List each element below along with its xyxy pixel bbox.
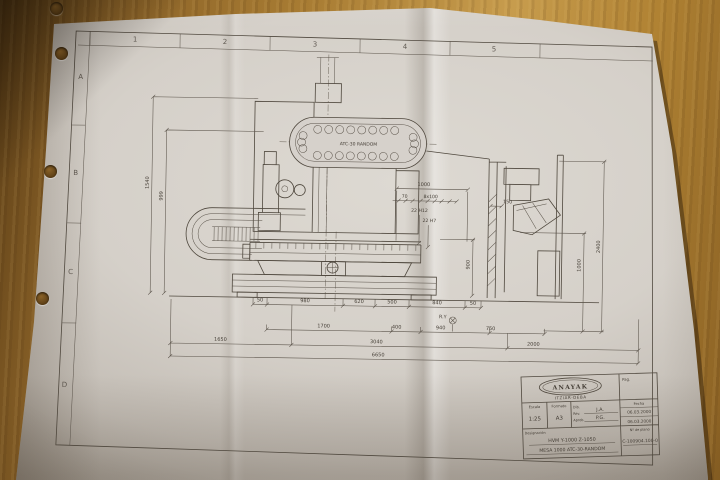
dim-label: 6650 — [372, 352, 385, 358]
revised-by-label: Rev. — [573, 412, 580, 416]
punch-hole — [44, 165, 57, 178]
date-value-2: 06.03.2000 — [627, 418, 651, 424]
format-value: A3 — [556, 416, 564, 422]
zone-col-label: 3 — [313, 40, 318, 48]
approved-by-label: Aprob. — [573, 418, 584, 422]
scale-label: Escala — [529, 405, 541, 409]
dim-label: 500 — [387, 299, 397, 305]
punch-hole — [36, 292, 49, 305]
dim-label: 70 — [402, 194, 408, 200]
brand-location: ITZIAR-DEBA — [555, 394, 587, 400]
plan-number-value: C-100904.100-0 — [622, 438, 658, 445]
photo-of-drawing: 1 2 3 4 5 A B C D — [0, 0, 720, 480]
zone-col-label: 2 — [223, 38, 228, 46]
date-label: Fecha — [634, 402, 645, 406]
approved-by-value: P.G. — [596, 415, 605, 421]
designation-label: Designación — [525, 431, 546, 436]
dim-label: 3040 — [370, 339, 383, 345]
punch-hole — [55, 47, 68, 60]
machine-elevation: ATC-30 RANDOM — [169, 52, 603, 316]
dim-label: 8x100 — [423, 194, 438, 200]
dim-label: 840 — [432, 300, 442, 306]
dim-label: 22 H12 — [411, 208, 428, 214]
drawing-sheet-svg: 1 2 3 4 5 A B C D — [0, 0, 720, 480]
dim-label: 940 — [436, 325, 446, 331]
dim-label: 22 H7 — [422, 218, 436, 224]
format-label: Formato — [551, 404, 566, 408]
zone-col-label: 4 — [403, 43, 408, 51]
scale-value: 1:25 — [529, 416, 542, 422]
atc-label: ATC-30 RANDOM — [340, 141, 378, 148]
zone-row-label: C — [68, 268, 73, 276]
designation-line1: HVM Y-1000 Z-1050 — [548, 437, 596, 444]
dim-label: 50 — [470, 301, 476, 307]
brand-logo-text: ANAYAK — [552, 383, 589, 391]
zone-row-label: D — [62, 381, 67, 389]
sheet-content: 1 2 3 4 5 A B C D — [0, 0, 720, 480]
dim-label: 1540 — [145, 176, 151, 189]
zone-col-label: 5 — [492, 45, 497, 53]
dim-label: 50 — [257, 297, 263, 303]
dim-label: 1000 — [417, 182, 430, 188]
zone-row-label: B — [73, 169, 78, 177]
dim-label: 900 — [466, 260, 472, 270]
plan-number-label: Nº de plano — [630, 427, 650, 432]
dim-label: 1700 — [317, 323, 330, 329]
dim-label: 1000 — [577, 259, 583, 272]
dim-label: 150 — [503, 199, 512, 205]
drawn-by-label: Dib. — [573, 405, 580, 409]
punch-hole — [50, 2, 63, 15]
date-value-1: 06.03.2000 — [627, 409, 651, 415]
dim-label: 2400 — [596, 240, 602, 253]
page-label: Pag. — [622, 377, 630, 382]
dim-label: 980 — [300, 298, 310, 304]
drawn-by-value: J.A. — [595, 407, 604, 413]
zone-row-label: A — [78, 73, 83, 81]
zone-col-label: 1 — [133, 36, 138, 44]
dim-label: 620 — [354, 299, 364, 305]
dim-label: 1650 — [214, 337, 227, 343]
dim-label: 750 — [486, 326, 496, 332]
dim-label: 400 — [392, 325, 402, 331]
title-block: ANAYAK ITZIAR-DEBA Pag. Escala 1:25 Form… — [521, 373, 660, 459]
dim-label: 999 — [159, 191, 165, 201]
dim-label: 2000 — [527, 342, 540, 348]
ref-marker-label: R.Y — [439, 314, 447, 320]
